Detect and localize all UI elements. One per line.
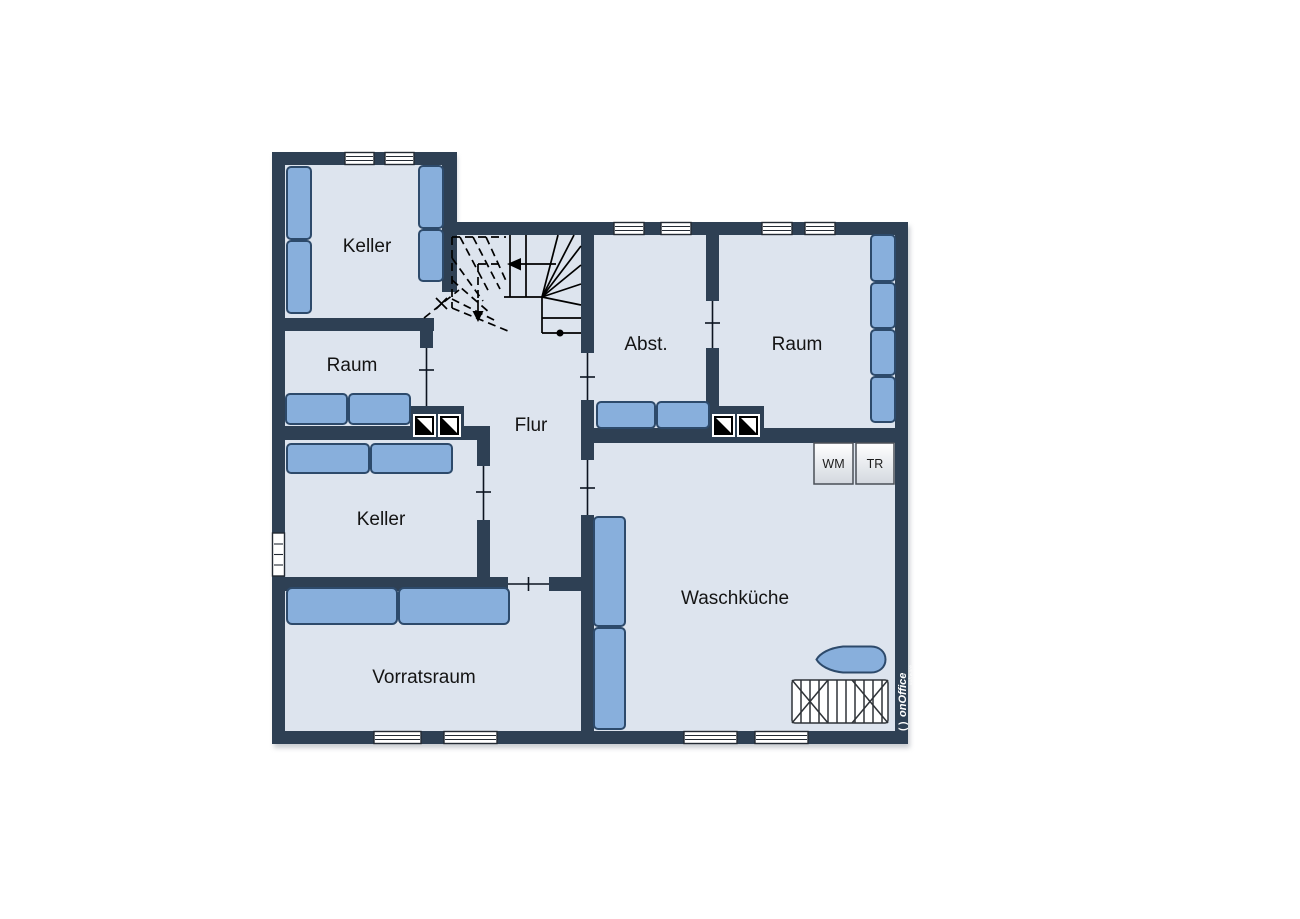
stair-start-dot bbox=[557, 330, 564, 337]
wall bbox=[477, 440, 490, 466]
washing-machine-label: WM bbox=[822, 457, 844, 471]
dryer-label: TR bbox=[867, 457, 884, 471]
window-icon bbox=[385, 153, 414, 165]
window-icon bbox=[755, 732, 808, 744]
wall bbox=[272, 318, 434, 331]
wall bbox=[272, 731, 908, 744]
wall bbox=[581, 515, 594, 731]
wall bbox=[581, 400, 594, 460]
furniture-shelf bbox=[419, 230, 443, 281]
wall bbox=[272, 152, 285, 744]
drying-rack-icon bbox=[792, 680, 888, 723]
furniture-shelf bbox=[594, 628, 625, 729]
window-icon bbox=[374, 732, 421, 744]
room-label-keller-nw: Keller bbox=[343, 236, 392, 257]
chimney-icon bbox=[414, 415, 435, 436]
furniture-shelf bbox=[287, 241, 311, 313]
window-icon bbox=[805, 223, 835, 235]
furniture-shelf bbox=[871, 235, 895, 281]
furniture-shelf bbox=[597, 402, 655, 428]
wall bbox=[706, 235, 719, 301]
furniture-shelf bbox=[286, 394, 347, 424]
floorplan-svg: Keller Raum Abst. Raum Flur Keller Wasch… bbox=[0, 0, 1300, 919]
furniture-shelf bbox=[399, 588, 509, 624]
furniture-shelf bbox=[371, 444, 452, 473]
room-label-waschkueche: Waschküche bbox=[681, 588, 789, 609]
window-icon bbox=[661, 223, 691, 235]
furniture-shelf bbox=[287, 167, 311, 239]
window-icon bbox=[444, 732, 497, 744]
furniture-shelf bbox=[287, 444, 369, 473]
furniture-shelf bbox=[871, 283, 895, 328]
window-icon bbox=[273, 533, 285, 576]
window-icon bbox=[684, 732, 737, 744]
room-label-raum-e: Raum bbox=[772, 334, 823, 355]
window-icon bbox=[345, 153, 374, 165]
wall bbox=[581, 222, 594, 353]
room-label-abst: Abst. bbox=[624, 334, 667, 355]
furniture-shelf bbox=[871, 330, 895, 375]
furniture-shelf bbox=[657, 402, 709, 428]
brand-logo-mark: ( ) bbox=[898, 722, 909, 731]
wall bbox=[895, 222, 908, 744]
room-label-keller-w: Keller bbox=[357, 509, 406, 530]
chimney-icon bbox=[738, 415, 759, 436]
wall bbox=[420, 331, 433, 348]
window-icon bbox=[762, 223, 792, 235]
room-label-vorratsraum: Vorratsraum bbox=[372, 667, 475, 688]
chimney-icon bbox=[713, 415, 734, 436]
furniture-shelf bbox=[419, 166, 443, 228]
ironing-board-icon bbox=[817, 647, 886, 673]
wall bbox=[477, 520, 490, 577]
room-label-flur: Flur bbox=[515, 415, 548, 436]
washing-machine: WM bbox=[814, 443, 853, 484]
brand-logo-subtext: software bbox=[908, 665, 913, 685]
floorplan-page: Keller Raum Abst. Raum Flur Keller Wasch… bbox=[0, 0, 1300, 919]
furniture-shelf bbox=[594, 517, 625, 626]
chimney-icon bbox=[439, 415, 460, 436]
window-icon bbox=[614, 223, 644, 235]
room-label-raum-w: Raum bbox=[327, 355, 378, 376]
furniture-shelf bbox=[871, 377, 895, 422]
furniture-shelf bbox=[287, 588, 397, 624]
furniture-shelf bbox=[349, 394, 410, 424]
dryer: TR bbox=[856, 443, 894, 484]
